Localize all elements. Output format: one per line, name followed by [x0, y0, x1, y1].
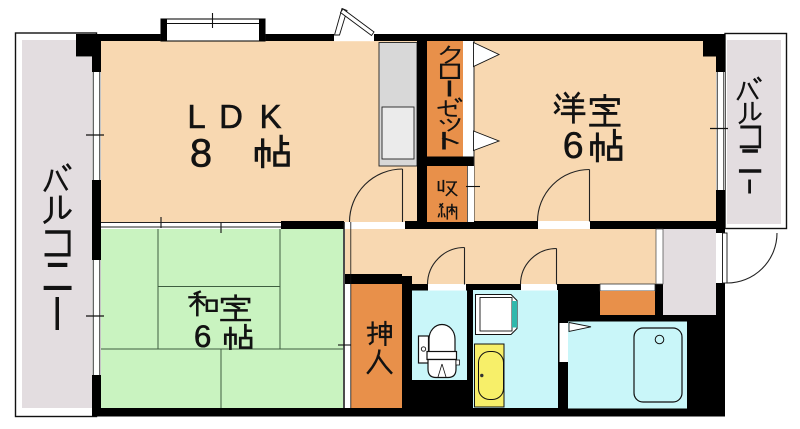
- svg-text:6: 6: [194, 318, 212, 354]
- svg-text:K: K: [259, 98, 281, 135]
- svg-text:D: D: [219, 98, 243, 135]
- svg-text:8: 8: [190, 132, 212, 176]
- svg-text:L: L: [187, 98, 205, 135]
- svg-text:6: 6: [563, 124, 584, 166]
